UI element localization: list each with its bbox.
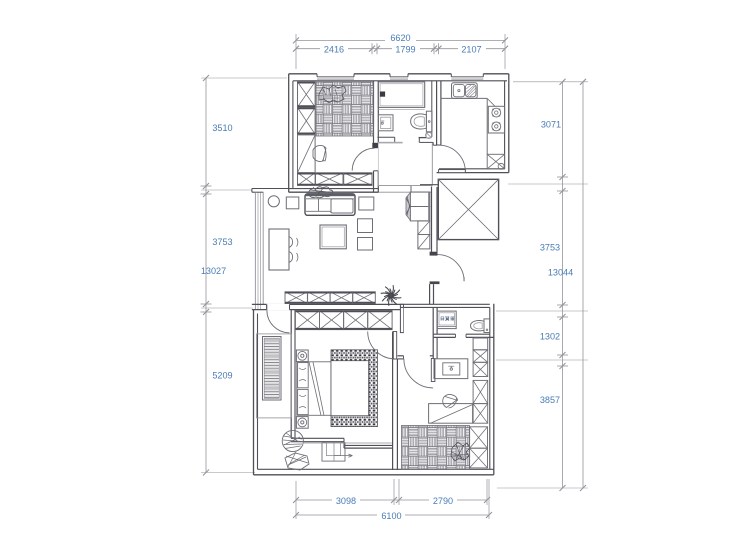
- svg-text:3071: 3071: [541, 120, 561, 130]
- svg-text:1799: 1799: [395, 45, 415, 55]
- svg-text:6620: 6620: [390, 33, 410, 43]
- svg-text:3098: 3098: [336, 496, 356, 506]
- svg-text:6100: 6100: [381, 511, 401, 521]
- svg-text:3753: 3753: [540, 243, 560, 253]
- svg-text:13027: 13027: [201, 266, 226, 276]
- svg-text:5209: 5209: [212, 371, 232, 381]
- svg-text:2416: 2416: [324, 45, 344, 55]
- svg-text:3857: 3857: [540, 395, 560, 405]
- svg-text:3753: 3753: [212, 237, 232, 247]
- svg-text:1302: 1302: [540, 332, 560, 342]
- svg-text:2107: 2107: [461, 45, 481, 55]
- svg-text:13044: 13044: [548, 267, 573, 277]
- svg-text:3510: 3510: [212, 123, 232, 133]
- svg-text:2790: 2790: [433, 496, 453, 506]
